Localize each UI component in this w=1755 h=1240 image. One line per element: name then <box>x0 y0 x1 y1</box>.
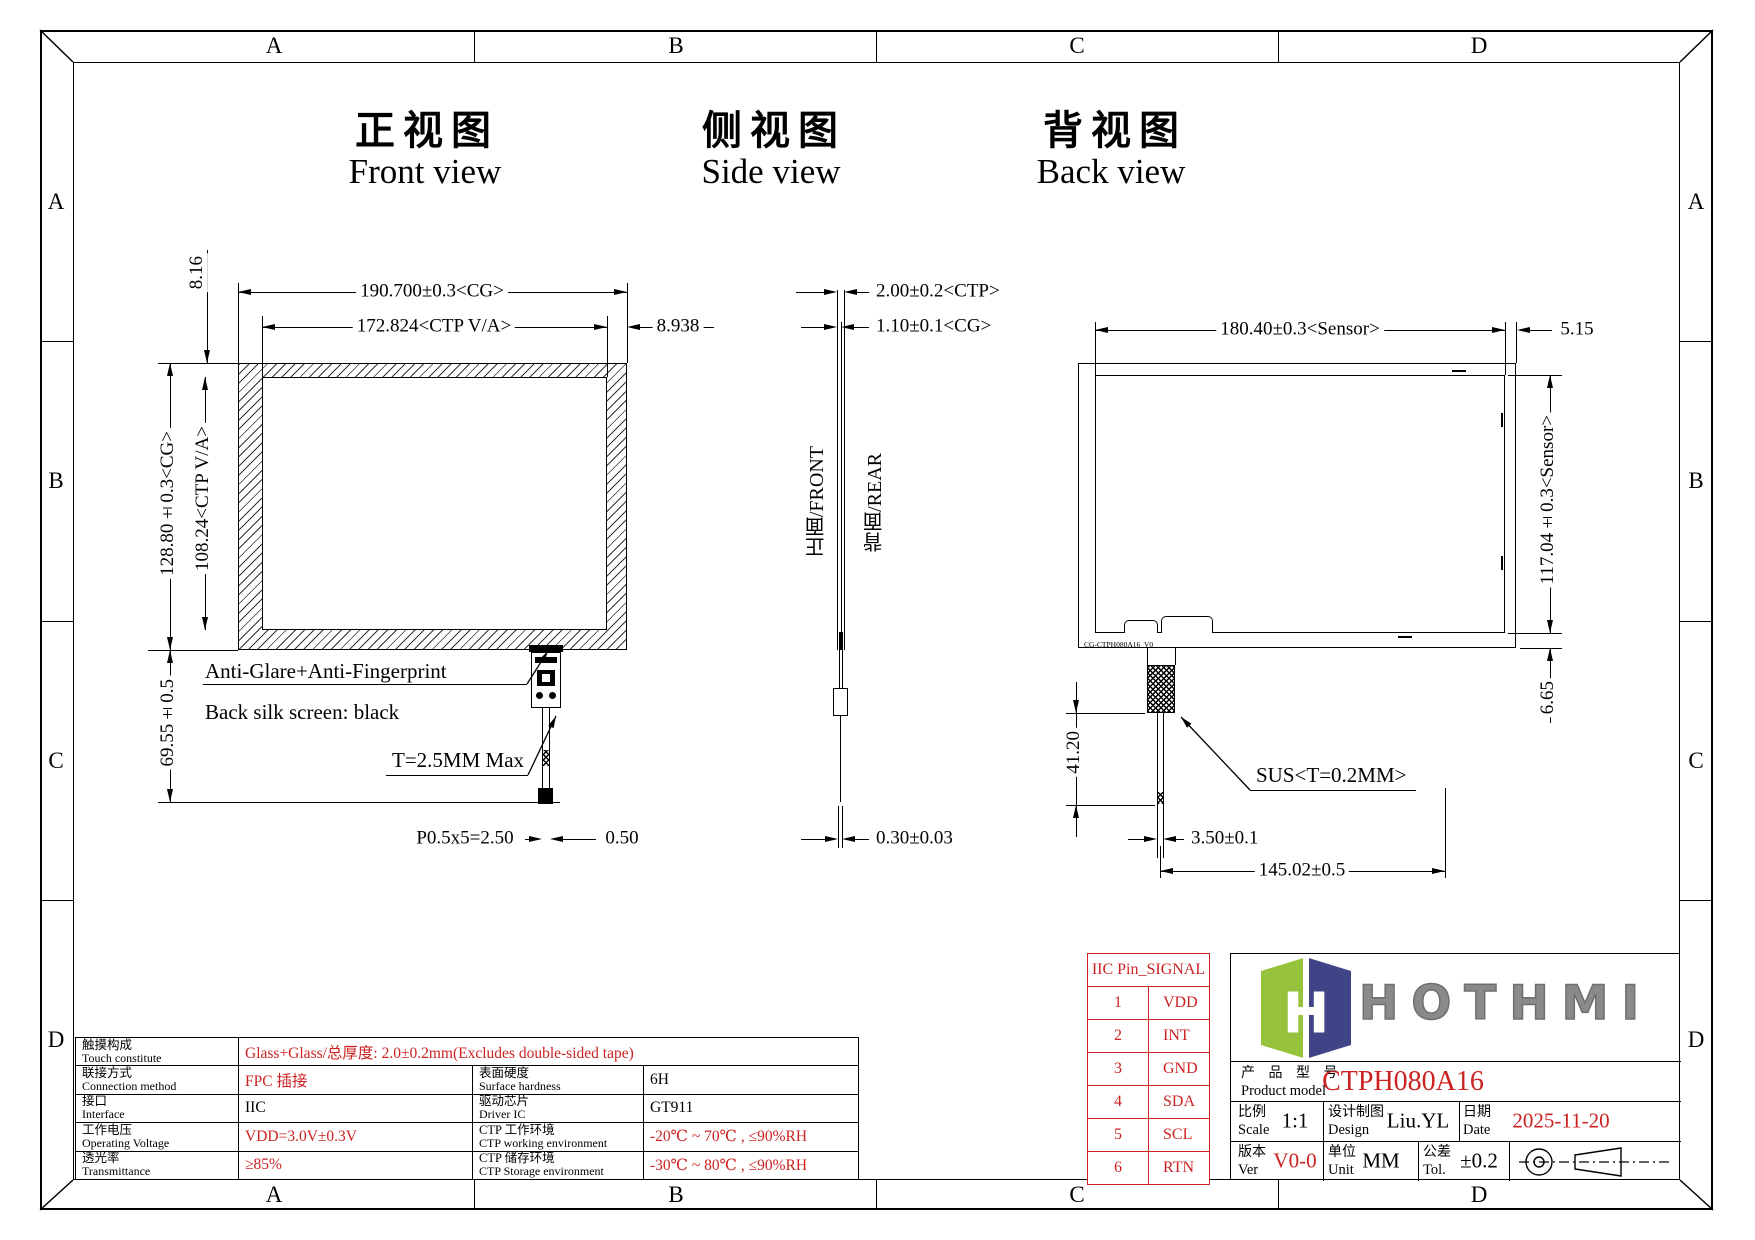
pin-number: 1 <box>1088 987 1149 1020</box>
iic-pin-table: IIC Pin_SIGNAL 1VDD 2INT 3GND 4SDA 5SCL … <box>1087 953 1210 1185</box>
dim-front-height-va: 108.24<CTP V/A> <box>192 423 214 574</box>
spec-value: IIC <box>239 1094 473 1122</box>
scale-value: 1:1 <box>1282 1109 1309 1134</box>
spec-table: 触摸构成Touch constitute Glass+Glass/总厚度: 2.… <box>75 1037 859 1180</box>
label-front-face: 正面/FRONT <box>806 443 829 560</box>
dim-back-right-margin: 5.15 <box>1556 320 1597 341</box>
dim-back-fpc-offset: 41.20 <box>1063 728 1085 777</box>
dim-side-ctp-thickness: 2.00±0.2<CTP> <box>873 282 1003 303</box>
spec-value: FPC 插接 <box>239 1066 473 1094</box>
title-block-divider <box>1509 1141 1510 1181</box>
spec-label-en: Touch constitute <box>82 1052 238 1065</box>
dim-side-cg-thickness: 1.10±0.1<CG> <box>873 317 994 338</box>
unit-value: MM <box>1362 1149 1399 1174</box>
dim-back-height-sensor: 117.04±0.3<Sensor> <box>1537 412 1559 587</box>
dim-back-tail-width: 3.50±0.1 <box>1188 829 1261 850</box>
date-label-cn: 日期 <box>1463 1105 1491 1121</box>
pin-number: 2 <box>1088 1020 1149 1053</box>
ver-label-en: Ver <box>1238 1162 1258 1178</box>
iic-table-title: IIC Pin_SIGNAL <box>1088 954 1210 987</box>
dim-back-tail-position: 145.02±0.5 <box>1255 861 1349 882</box>
drawing-sheet: A B C D A B C D A B C D A B C D 正视图 Fron… <box>0 0 1755 1240</box>
unit-label-cn: 单位 <box>1328 1145 1356 1161</box>
spec-label-en: Operating Voltage <box>82 1137 238 1150</box>
table-row: 触摸构成Touch constitute Glass+Glass/总厚度: 2.… <box>76 1038 859 1066</box>
date-label-en: Date <box>1463 1122 1490 1138</box>
pin-number: 6 <box>1088 1152 1149 1185</box>
pin-number: 4 <box>1088 1086 1149 1119</box>
design-label-cn: 设计制图 <box>1328 1105 1384 1121</box>
dim-back-bottom-margin: 6.65 <box>1537 678 1559 717</box>
design-label-en: Design <box>1328 1122 1369 1138</box>
spec-label-en: CTP Storage environment <box>479 1165 643 1178</box>
product-model-value: CTPH080A16 <box>1322 1066 1484 1098</box>
label-rear-face: 背面/REAR <box>864 450 887 555</box>
ver-label-cn: 版本 <box>1238 1145 1266 1161</box>
model-label-en: Product model <box>1241 1083 1326 1099</box>
title-block: H HOTHMI 产 品 型 号 Product model CTPH080A1… <box>1230 953 1680 1180</box>
spec-label-cn: 触摸构成 <box>82 1039 238 1052</box>
tol-value: ±0.2 <box>1460 1149 1498 1174</box>
spec-label-en: Connection method <box>82 1080 238 1093</box>
pin-signal: RTN <box>1149 1152 1210 1185</box>
title-block-divider <box>1459 1101 1460 1141</box>
date-value: 2025-11-20 <box>1512 1109 1609 1134</box>
pin-signal: VDD <box>1149 987 1210 1020</box>
table-row: 接口Interface IIC 驱动芯片Driver IC GT911 <box>76 1094 859 1122</box>
spec-value: ≥85% <box>239 1151 473 1179</box>
note-anti-glare: Anti-Glare+Anti-Fingerprint <box>205 659 447 684</box>
spec-value: -20℃ ~ 70℃ , ≤90%RH <box>644 1123 859 1151</box>
pin-number: 5 <box>1088 1119 1149 1152</box>
table-row: 联接方式Connection method FPC 插接 表面硬度Surface… <box>76 1066 859 1094</box>
scale-label-cn: 比例 <box>1238 1105 1266 1121</box>
pin-signal: GND <box>1149 1053 1210 1086</box>
unit-label-en: Unit <box>1328 1162 1354 1178</box>
pin-number: 3 <box>1088 1053 1149 1086</box>
title-block-divider <box>1418 1141 1419 1181</box>
spec-value: Glass+Glass/总厚度: 2.0±0.2mm(Excludes doub… <box>239 1038 859 1066</box>
scale-label-en: Scale <box>1238 1122 1269 1138</box>
spec-label-en: Transmittance <box>82 1165 238 1178</box>
dim-side-film-thickness: 0.30±0.03 <box>873 829 956 850</box>
dim-front-right-margin: 8.938 <box>653 317 704 338</box>
dim-fpc-pitch: P0.5x5=2.50 <box>412 829 517 850</box>
dim-front-tail-length: 69.55±0.5 <box>157 676 179 770</box>
hothmi-logo-icon: H <box>1261 958 1351 1058</box>
dim-front-top-margin: 8.16 <box>186 253 208 292</box>
dim-front-width-va: 172.824<CTP V/A> <box>353 317 515 338</box>
spec-value: VDD=3.0V±0.3V <box>239 1123 473 1151</box>
title-block-divider <box>1323 1101 1324 1181</box>
title-block-divider <box>1231 1101 1681 1102</box>
tol-label-en: Tol. <box>1423 1162 1446 1178</box>
spec-value: -30℃ ~ 80℃ , ≤90%RH <box>644 1151 859 1179</box>
pin-signal: SCL <box>1149 1119 1210 1152</box>
dim-fpc-tail-width: 0.50 <box>601 829 642 850</box>
edge-silk-label: CG-CTPH080A16_V0 <box>1084 640 1153 649</box>
note-sus: SUS<T=0.2MM> <box>1256 763 1406 788</box>
spec-label-cn: CTP 工作环境 <box>479 1124 643 1137</box>
spec-value: GT911 <box>644 1094 859 1122</box>
tol-label-cn: 公差 <box>1423 1145 1451 1161</box>
pin-signal: INT <box>1149 1020 1210 1053</box>
title-block-divider <box>1231 1141 1681 1142</box>
logo-letter: H <box>1283 982 1330 1047</box>
spec-label-en: CTP working environment <box>479 1137 643 1150</box>
spec-label-cn: 工作电压 <box>82 1124 238 1137</box>
spec-label-en: Interface <box>82 1108 238 1121</box>
note-back-silk: Back silk screen: black <box>205 700 399 725</box>
dim-front-height-cg: 128.80±0.3<CG> <box>157 428 179 579</box>
table-row: 工作电压Operating Voltage VDD=3.0V±0.3V CTP … <box>76 1123 859 1151</box>
dim-front-width-cg: 190.700±0.3<CG> <box>356 282 508 303</box>
spec-value: 6H <box>644 1066 859 1094</box>
pin-signal: SDA <box>1149 1086 1210 1119</box>
table-row: 透光率Transmittance ≥85% CTP 储存环境CTP Storag… <box>76 1151 859 1179</box>
spec-label-en: Driver IC <box>479 1108 643 1121</box>
projection-symbol-icon <box>1517 1146 1675 1178</box>
brand-name: HOTHMI <box>1359 976 1652 1031</box>
spec-label-en: Surface hardness <box>479 1080 643 1093</box>
title-block-divider <box>1231 1061 1681 1062</box>
dim-back-width-sensor: 180.40±0.3<Sensor> <box>1216 320 1384 341</box>
note-thickness: T=2.5MM Max <box>392 748 524 773</box>
design-value: Liu.YL <box>1387 1109 1449 1134</box>
ver-value: V0-0 <box>1273 1149 1316 1174</box>
